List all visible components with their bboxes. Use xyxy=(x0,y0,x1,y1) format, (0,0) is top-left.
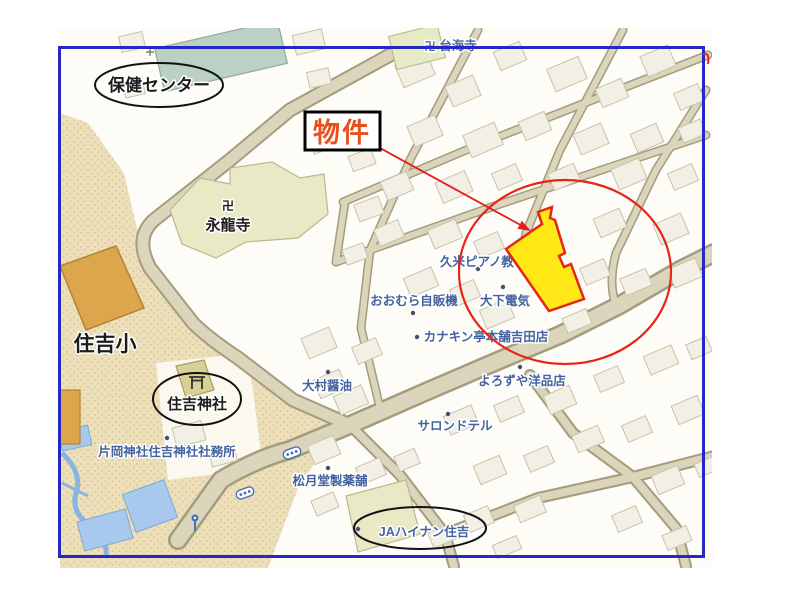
poi-dot xyxy=(518,365,522,369)
property-label-text: 物件 xyxy=(313,118,371,148)
label-omura-vending: おおむら自販機 xyxy=(370,293,458,308)
poi-dot xyxy=(326,370,330,374)
poi-dot xyxy=(326,466,330,470)
manji-icon: 卍 xyxy=(222,199,234,213)
poi-dot xyxy=(165,436,169,440)
label-kanakintei: カナキン亭本舗吉田店 xyxy=(424,329,549,344)
school-building-annex xyxy=(60,390,80,444)
poi-dot xyxy=(446,412,450,416)
label-yorozuya: よろずや洋品店 xyxy=(478,373,566,388)
label-eiryuji-temple: 永龍寺 xyxy=(204,216,250,234)
poi-dot xyxy=(501,285,505,289)
label-kume-piano: 久米ピアノ教 xyxy=(439,254,514,269)
poi-dot xyxy=(411,311,415,315)
label-sumiyoshi-shrine: 住吉神社 xyxy=(167,395,227,413)
label-salon-de-tel: サロンドテル xyxy=(417,419,493,433)
property-location-map: 保健センター 卍 永龍寺 住吉小 住吉神社 卍 台海寺 久米ピアノ教 おおむら自… xyxy=(58,28,712,568)
label-ja-hainan: JAハイナン住吉 xyxy=(379,524,469,539)
label-shogetsudo-pharmacy: 松月堂製薬舗 xyxy=(292,473,368,488)
label-oshita-denki: 大下電気 xyxy=(480,293,531,308)
property-flyer-page: 保健センター 卍 永龍寺 住吉小 住吉神社 卍 台海寺 久米ピアノ教 おおむら自… xyxy=(0,0,800,600)
label-sumiyoshi-elementary: 住吉小 xyxy=(74,332,137,356)
poi-dot xyxy=(415,335,419,339)
label-omura-soy-sauce: 大村醤油 xyxy=(302,378,352,393)
label-kataoka-shrine-office: 片岡神社住吉神社社務所 xyxy=(98,444,236,459)
label-taikaiji-temple: 台海寺 xyxy=(439,38,477,53)
poi-dot xyxy=(356,527,360,531)
label-health-center: 保健センター xyxy=(107,75,210,95)
map-canvas: 保健センター 卍 永龍寺 住吉小 住吉神社 卍 台海寺 久米ピアノ教 おおむら自… xyxy=(58,28,712,568)
